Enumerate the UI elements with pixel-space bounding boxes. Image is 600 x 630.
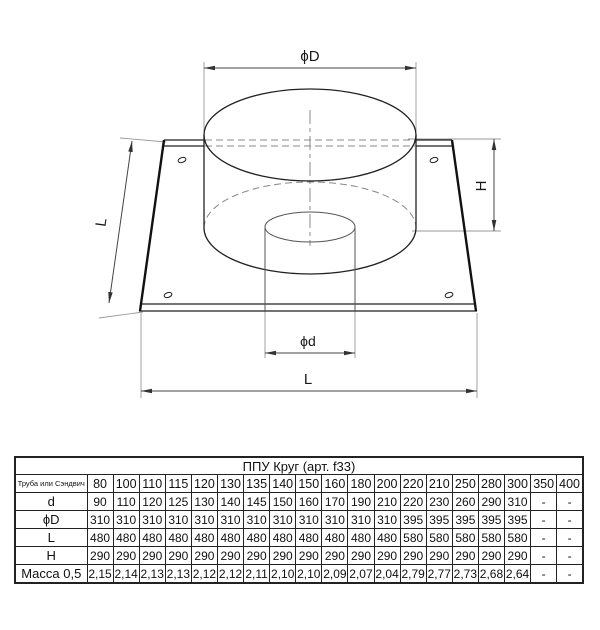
size-col-210: 210 [426,475,452,493]
cell-r3-c9: 290 [322,547,348,565]
cell-r2-c2: 480 [139,529,165,547]
cell-r2-c7: 480 [270,529,296,547]
cell-r2-c17: - [531,529,557,547]
cell-r0-c15: 290 [478,493,504,511]
row-label-2: L [15,529,87,547]
plate-left-edge [140,140,164,311]
table-row-0: d901101201251301401451501601701902102202… [15,493,583,511]
cell-r4-c2: 2,13 [139,565,165,584]
cell-r3-c10: 290 [348,547,374,565]
cell-r3-c5: 290 [217,547,243,565]
cell-r1-c1: 310 [113,511,139,529]
cell-r0-c2: 120 [139,493,165,511]
size-col-150: 150 [296,475,322,493]
size-col-180: 180 [348,475,374,493]
size-col-200: 200 [374,475,400,493]
cell-r0-c17: - [531,493,557,511]
screw-hole-top-left [177,156,186,163]
cell-r3-c17: - [531,547,557,565]
size-col-120: 120 [191,475,217,493]
cell-r4-c12: 2,79 [400,565,426,584]
cell-r2-c8: 480 [296,529,322,547]
cell-r0-c0: 90 [87,493,113,511]
cell-r2-c3: 480 [165,529,191,547]
cell-r1-c17: - [531,511,557,529]
cell-r0-c12: 220 [400,493,426,511]
cell-r4-c1: 2,14 [113,565,139,584]
cell-r0-c18: - [557,493,583,511]
ext-Lside-top [120,138,166,142]
row-label-1: ϕD [15,511,87,529]
page: ϕD H L L ϕd ППУ Круг (арт. f33)Труба или… [0,0,600,630]
cell-r3-c7: 290 [270,547,296,565]
cell-r1-c7: 310 [270,511,296,529]
cell-r0-c16: 310 [505,493,531,511]
cell-r2-c10: 480 [348,529,374,547]
size-col-115: 115 [165,475,191,493]
cell-r4-c9: 2,09 [322,565,348,584]
size-col-100: 100 [113,475,139,493]
cell-r2-c1: 480 [113,529,139,547]
cell-r0-c3: 125 [165,493,191,511]
cell-r2-c16: 580 [505,529,531,547]
cell-r1-c5: 310 [217,511,243,529]
label-L-bottom: L [304,371,312,388]
label-diad: ϕd [300,333,316,349]
dimension-table: ППУ Круг (арт. f33)Труба или Сэндвич8010… [14,456,584,584]
size-col-130: 130 [217,475,243,493]
cell-r4-c3: 2,13 [165,565,191,584]
cell-r3-c15: 290 [478,547,504,565]
screw-hole-bottom-right [444,291,453,298]
cell-r0-c14: 260 [452,493,478,511]
cell-r3-c12: 290 [400,547,426,565]
cell-r4-c16: 2,64 [505,565,531,584]
size-col-250: 250 [452,475,478,493]
cell-r2-c5: 480 [217,529,243,547]
cell-r2-c0: 480 [87,529,113,547]
cell-r3-c13: 290 [426,547,452,565]
size-col-400: 400 [557,475,583,493]
cell-r1-c14: 395 [452,511,478,529]
cell-r4-c15: 2,68 [478,565,504,584]
cell-r0-c9: 170 [322,493,348,511]
cell-r4-c8: 2,10 [296,565,322,584]
cell-r0-c11: 210 [374,493,400,511]
cell-r4-c17: - [531,565,557,584]
cell-r0-c10: 190 [348,493,374,511]
cell-r1-c3: 310 [165,511,191,529]
cell-r1-c12: 395 [400,511,426,529]
plate-right-edge [452,140,476,311]
dim-line-L-side [109,141,132,303]
label-diaD: ϕD [300,48,319,65]
cell-r1-c2: 310 [139,511,165,529]
size-col-220: 220 [400,475,426,493]
cell-r4-c4: 2,12 [191,565,217,584]
cell-r1-c11: 310 [374,511,400,529]
screw-holes [163,156,453,298]
row-label-3: H [15,547,87,565]
label-H: H [473,181,490,192]
table-row-2: L480480480480480480480480480480480480580… [15,529,583,547]
dimension-table-body: ППУ Круг (арт. f33)Труба или Сэндвич8010… [15,457,583,583]
cell-r0-c8: 160 [296,493,322,511]
cell-r3-c16: 290 [505,547,531,565]
ext-Lside-bottom [99,312,143,318]
cell-r2-c18: - [557,529,583,547]
size-col-135: 135 [244,475,270,493]
cell-r4-c10: 2,07 [348,565,374,584]
cell-r4-c13: 2,77 [426,565,452,584]
cell-r3-c14: 290 [452,547,478,565]
cell-r2-c12: 580 [400,529,426,547]
cell-r2-c15: 580 [478,529,504,547]
cell-r3-c8: 290 [296,547,322,565]
cell-r3-c6: 290 [244,547,270,565]
table-title: ППУ Круг (арт. f33) [15,457,583,475]
cell-r2-c13: 580 [426,529,452,547]
size-col-300: 300 [505,475,531,493]
cell-r2-c6: 480 [244,529,270,547]
size-col-140: 140 [270,475,296,493]
cell-r3-c2: 290 [139,547,165,565]
cell-r3-c18: - [557,547,583,565]
row-label-4: Масса 0,5 [15,565,87,584]
table-row-4: Масса 0,52,152,142,132,132,122,122,112,1… [15,565,583,584]
cell-r2-c11: 480 [374,529,400,547]
cell-r1-c0: 310 [87,511,113,529]
cell-r4-c11: 2,04 [374,565,400,584]
cell-r1-c9: 310 [322,511,348,529]
cell-r1-c8: 310 [296,511,322,529]
cell-r4-c14: 2,73 [452,565,478,584]
row-label-0: d [15,493,87,511]
cell-r2-c14: 580 [452,529,478,547]
size-col-160: 160 [322,475,348,493]
cell-r3-c0: 290 [87,547,113,565]
cell-r2-c4: 480 [191,529,217,547]
technical-drawing: ϕD H L L ϕd [0,0,600,450]
cell-r1-c15: 395 [478,511,504,529]
cell-r0-c4: 130 [191,493,217,511]
cell-r0-c1: 110 [113,493,139,511]
corner-header: Труба или Сэндвич [15,475,87,493]
cell-r0-c7: 150 [270,493,296,511]
size-col-80: 80 [87,475,113,493]
cell-r1-c13: 395 [426,511,452,529]
cell-r1-c18: - [557,511,583,529]
cell-r1-c6: 310 [244,511,270,529]
cell-r3-c4: 290 [191,547,217,565]
screw-hole-top-right [429,156,438,163]
cell-r4-c0: 2,15 [87,565,113,584]
size-col-280: 280 [478,475,504,493]
cell-r4-c7: 2,10 [270,565,296,584]
label-L-side: L [93,217,111,228]
table-row-1: ϕD31031031031031031031031031031031031039… [15,511,583,529]
cell-r3-c1: 290 [113,547,139,565]
table-row-3: H290290290290290290290290290290290290290… [15,547,583,565]
size-col-110: 110 [139,475,165,493]
cell-r1-c16: 395 [505,511,531,529]
cell-r0-c6: 145 [244,493,270,511]
cell-r2-c9: 480 [322,529,348,547]
cell-r4-c6: 2,11 [244,565,270,584]
cell-r1-c10: 310 [348,511,374,529]
cell-r3-c11: 290 [374,547,400,565]
screw-hole-bottom-left [163,291,172,298]
base-plate [139,140,477,311]
cell-r0-c5: 140 [217,493,243,511]
cell-r0-c13: 230 [426,493,452,511]
cell-r1-c4: 310 [191,511,217,529]
size-col-350: 350 [531,475,557,493]
cell-r4-c5: 2,12 [217,565,243,584]
cell-r4-c18: - [557,565,583,584]
cell-r3-c3: 290 [165,547,191,565]
